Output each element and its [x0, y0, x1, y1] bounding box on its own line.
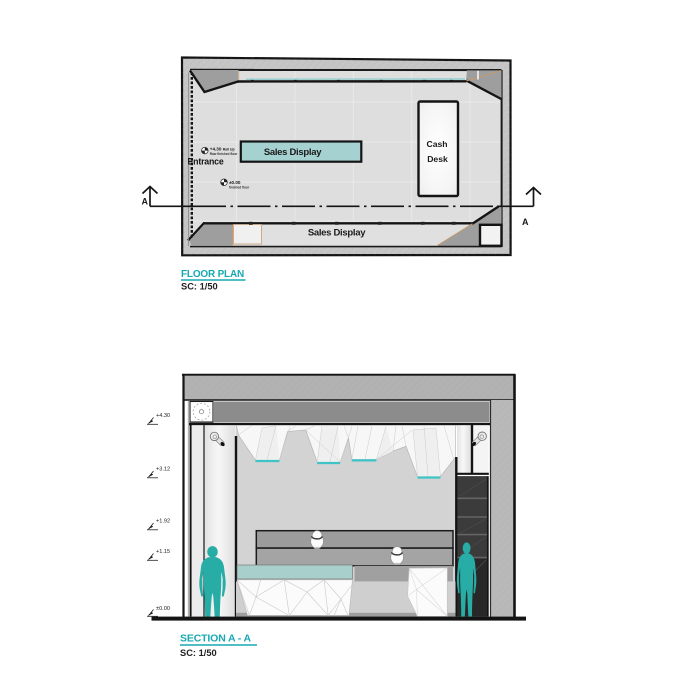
svg-text:FLOOR PLAN: FLOOR PLAN [181, 269, 244, 280]
svg-text:Desk: Desk [427, 154, 448, 164]
svg-text:+3.12: +3.12 [156, 467, 170, 473]
svg-text:Sales Display: Sales Display [308, 228, 366, 239]
svg-text:+1.15: +1.15 [156, 549, 170, 555]
svg-text:+4.30: +4.30 [156, 413, 170, 419]
svg-text:SECTION A - A: SECTION A - A [180, 633, 252, 645]
svg-text:Sales Display: Sales Display [264, 147, 322, 158]
svg-text:+1.92: +1.92 [156, 519, 170, 525]
svg-text:SC: 1/50: SC: 1/50 [181, 282, 218, 292]
svg-text:SC: 1/50: SC: 1/50 [180, 648, 217, 658]
svg-text:+4.30 Roll Up: +4.30 Roll Up [210, 146, 235, 151]
svg-text:±0.00: ±0.00 [229, 180, 241, 185]
svg-text:±0.00: ±0.00 [156, 606, 170, 612]
svg-text:Cash: Cash [426, 139, 447, 149]
svg-text:Entrance: Entrance [188, 156, 224, 166]
svg-text:A: A [522, 217, 529, 227]
svg-text:A: A [142, 197, 149, 207]
svg-text:Raw finished floor: Raw finished floor [210, 152, 238, 156]
svg-text:finished floor: finished floor [229, 185, 250, 189]
